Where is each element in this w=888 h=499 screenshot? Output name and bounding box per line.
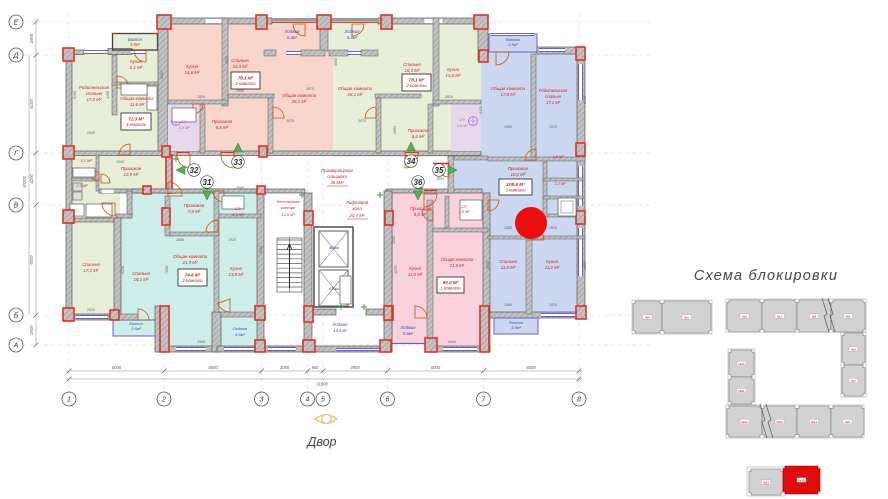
svg-text:5: 5 [321, 397, 325, 404]
svg-text:6150: 6150 [73, 91, 77, 99]
svg-text:4,1 М²: 4,1 М² [232, 212, 244, 217]
svg-text:32: 32 [190, 166, 199, 175]
svg-text:№6: №6 [851, 347, 856, 351]
svg-text:50.4 М²: 50.4 М² [443, 280, 459, 285]
svg-text:35: 35 [435, 166, 444, 175]
svg-text:2: 2 [161, 397, 166, 404]
svg-text:17,8 М²: 17,8 М² [501, 92, 516, 97]
svg-text:3575: 3575 [286, 119, 294, 123]
svg-text:2820: 2820 [86, 308, 95, 312]
svg-text:3575: 3575 [306, 87, 314, 91]
svg-text:А: А [13, 343, 19, 350]
svg-text:№4: №4 [812, 314, 817, 318]
svg-text:№5: №5 [846, 314, 851, 318]
svg-text:5052: 5052 [225, 56, 229, 64]
svg-text:11,0 М²: 11,0 М² [408, 272, 423, 277]
svg-text:1000: 1000 [236, 186, 244, 190]
svg-text:2-комнали: 2-комнали [181, 278, 203, 283]
svg-text:4: 4 [306, 397, 310, 404]
svg-text:20,7 М²: 20,7 М² [349, 213, 365, 218]
svg-text:74.6 М²: 74.6 М² [185, 272, 201, 277]
svg-text:31800: 31800 [316, 382, 328, 387]
svg-text:28,1 М²: 28,1 М² [347, 92, 363, 97]
svg-text:8,6 М²: 8,6 М² [412, 134, 425, 139]
svg-text:Общая комната: Общая комната [491, 86, 526, 91]
svg-text:31: 31 [203, 178, 212, 187]
svg-text:6100: 6100 [29, 99, 34, 109]
svg-text:2820: 2820 [548, 125, 557, 129]
svg-text:Общая комната: Общая комната [282, 93, 317, 98]
svg-text:6750: 6750 [583, 96, 587, 104]
svg-text:Спальня: Спальня [499, 259, 517, 264]
svg-text:14,5 м²: 14,5 м² [333, 328, 347, 333]
svg-text:2988: 2988 [235, 89, 244, 93]
svg-text:4250: 4250 [394, 266, 398, 274]
svg-text:78.1 М²: 78.1 М² [238, 75, 254, 80]
svg-text:Прихожая: Прихожая [212, 119, 233, 124]
svg-text:6.6м²: 6.6м² [347, 35, 358, 40]
svg-text:17,2 М²: 17,2 М² [84, 268, 99, 273]
svg-text:7,9 М²: 7,9 М² [188, 209, 201, 214]
svg-text:78.1 М²: 78.1 М² [409, 77, 425, 82]
svg-text:Родительская: Родительская [79, 85, 110, 90]
svg-text:клетка: клетка [281, 205, 296, 210]
svg-text:1850: 1850 [436, 177, 444, 181]
svg-text:Лоджия: Лоджия [344, 29, 361, 34]
svg-text:№7: №7 [851, 379, 856, 383]
svg-text:холл: холл [351, 206, 362, 211]
svg-text:Прихожая: Прихожая [121, 166, 142, 171]
svg-text:3-комнали: 3-комнали [505, 188, 526, 193]
svg-text:7600: 7600 [165, 266, 169, 274]
svg-text:Прихожая: Прихожая [408, 128, 429, 133]
svg-text:16,3 М²: 16,3 М² [405, 68, 420, 73]
svg-text:14,6 М²: 14,6 М² [446, 73, 461, 78]
svg-text:6000: 6000 [526, 365, 536, 370]
svg-text:С/У: С/У [459, 117, 466, 122]
svg-text:Кухня: Кухня [186, 64, 198, 69]
svg-text:36.5М²: 36.5М² [330, 180, 344, 185]
svg-text:3.6м²: 3.6м² [131, 326, 141, 331]
svg-text:Кухня: Кухня [447, 67, 459, 72]
svg-text:Кухня: Кухня [130, 59, 142, 64]
svg-text:2-комнали: 2-комнали [405, 83, 427, 88]
svg-text:2820: 2820 [227, 238, 236, 242]
svg-text:14,5 М²: 14,5 М² [281, 212, 295, 217]
svg-text:20200: 20200 [22, 176, 27, 189]
svg-text:36: 36 [414, 178, 423, 187]
svg-text:Приквартирная: Приквартирная [321, 168, 353, 173]
svg-text:Е: Е [14, 20, 19, 27]
svg-text:1: 1 [67, 397, 71, 404]
svg-text:6000: 6000 [112, 365, 122, 370]
svg-text:3,8 М²: 3,8 М² [552, 154, 564, 159]
svg-text:33: 33 [234, 158, 243, 167]
svg-text:10,2 М²: 10,2 М² [511, 172, 526, 177]
svg-text:2980: 2980 [175, 238, 184, 242]
svg-text:17,2 М²: 17,2 М² [546, 100, 561, 105]
svg-text:№13: №13 [776, 420, 783, 424]
svg-text:Схема блокировки: Схема блокировки [694, 268, 838, 284]
svg-text:С/У: С/У [235, 206, 242, 211]
svg-text:6000: 6000 [29, 255, 34, 265]
svg-text:12,9 М²: 12,9 М² [124, 172, 139, 177]
svg-text:Лоджия: Лоджия [332, 322, 349, 327]
svg-text:6000: 6000 [448, 340, 456, 344]
svg-text:9,8 М²: 9,8 М² [414, 212, 427, 217]
svg-text:13,8 М²: 13,8 М² [229, 272, 244, 277]
svg-text:3000: 3000 [280, 365, 290, 370]
svg-text:6.6м²: 6.6м² [287, 35, 298, 40]
svg-text:№1: №1 [684, 315, 689, 319]
svg-text:3575: 3575 [358, 119, 366, 123]
svg-text:2820: 2820 [196, 95, 205, 99]
svg-text:6000: 6000 [208, 365, 218, 370]
svg-text:2,2 М²: 2,2 М² [553, 181, 566, 186]
svg-text:Кухня: Кухня [230, 266, 242, 271]
svg-text:18,1 М²: 18,1 М² [134, 277, 149, 282]
svg-text:2820: 2820 [548, 303, 557, 307]
svg-text:34: 34 [407, 157, 416, 166]
svg-text:2980: 2980 [196, 340, 205, 344]
svg-text:3,1 М²: 3,1 М² [80, 158, 92, 163]
svg-text:1-комнали: 1-комнали [440, 286, 461, 291]
svg-text:28,1 М²: 28,1 М² [291, 99, 307, 104]
svg-text:№9: №9 [645, 315, 650, 319]
svg-text:6150: 6150 [479, 106, 483, 114]
svg-text:Спальня: Спальня [82, 262, 100, 267]
svg-text:5.1 М²: 5.1 М² [130, 65, 143, 70]
svg-text:2906: 2906 [29, 33, 34, 44]
svg-text:17.2 М²: 17.2 М² [87, 97, 102, 102]
svg-text:3,9 М²: 3,9 М² [456, 123, 468, 128]
svg-text:3,9 М²: 3,9 М² [178, 125, 190, 130]
svg-text:Общая комната: Общая комната [173, 254, 208, 259]
svg-text:11,2 М²: 11,2 М² [545, 265, 560, 270]
svg-text:С/У: С/У [461, 205, 468, 209]
svg-text:В: В [14, 203, 19, 210]
svg-text:2820: 2820 [86, 131, 95, 135]
svg-text:2000: 2000 [29, 325, 34, 336]
svg-text:2-комнали: 2-комнали [234, 81, 256, 86]
svg-text:Общая комната: Общая комната [441, 257, 474, 262]
svg-text:спальня: спальня [86, 91, 103, 96]
svg-text:№3: №3 [777, 314, 782, 318]
svg-text:№10: №10 [738, 362, 745, 366]
svg-text:1000: 1000 [116, 160, 124, 164]
svg-text:Кухня: Кухня [546, 259, 558, 264]
svg-text:2980: 2980 [393, 126, 397, 135]
svg-text:3.8м²: 3.8м² [130, 42, 141, 47]
svg-text:630кг: 630кг [329, 287, 339, 291]
svg-text:2988: 2988 [503, 125, 512, 129]
svg-text:№12: №12 [741, 420, 748, 424]
svg-text:Общая комната: Общая комната [120, 96, 154, 101]
svg-text:Родительская: Родительская [539, 88, 568, 93]
svg-text:Спальня: Спальня [403, 62, 421, 67]
svg-text:6150: 6150 [121, 266, 125, 274]
svg-text:2988: 2988 [503, 226, 512, 230]
svg-text:Лифтовой: Лифтовой [345, 200, 369, 205]
svg-text:14,6 М²: 14,6 М² [185, 70, 200, 75]
svg-text:11,8 М²: 11,8 М² [501, 265, 516, 270]
svg-text:3600: 3600 [259, 246, 263, 254]
svg-text:№14: №14 [811, 420, 818, 424]
svg-text:988кг: 988кг [329, 246, 339, 250]
svg-text:Прихожая: Прихожая [410, 206, 431, 211]
svg-text:Спальня: Спальня [231, 58, 249, 63]
svg-text:6650: 6650 [486, 261, 490, 269]
svg-text:8: 8 [577, 397, 581, 404]
svg-text:Общая комната: Общая комната [338, 86, 373, 91]
svg-text:5052: 5052 [160, 71, 164, 79]
svg-text:Лоджия: Лоджия [400, 325, 417, 330]
svg-text:спальня: спальня [545, 94, 562, 99]
svg-text:Двор: Двор [306, 435, 337, 449]
svg-text:№11: №11 [738, 389, 744, 393]
svg-text:№8: №8 [845, 420, 850, 424]
svg-text:11.6 М²: 11.6 М² [130, 102, 145, 107]
svg-text:№16: №16 [763, 480, 770, 484]
svg-text:6: 6 [386, 397, 390, 404]
svg-text:4150: 4150 [106, 91, 110, 99]
svg-text:Прихожая: Прихожая [508, 166, 529, 171]
svg-text:900: 900 [312, 365, 320, 370]
svg-text:108.6 М²: 108.6 М² [506, 182, 525, 187]
svg-text:3-комнали: 3-комнали [126, 122, 147, 127]
svg-text:2988: 2988 [503, 303, 512, 307]
svg-text:Прихожая: Прихожая [184, 203, 205, 208]
svg-text:6000: 6000 [431, 365, 441, 370]
svg-text:№2: №2 [742, 314, 747, 318]
svg-text:3: 3 [260, 397, 264, 404]
svg-text:2,2 М²: 2,2 М² [75, 183, 88, 188]
svg-text:21,9 М²: 21,9 М² [182, 260, 198, 265]
svg-text:площадка: площадка [327, 174, 347, 179]
svg-text:3.0м²: 3.0м² [511, 325, 521, 330]
svg-text:Лоджия: Лоджия [284, 29, 301, 34]
svg-text:Д: Д [13, 53, 19, 60]
svg-text:Кухня: Кухня [409, 266, 421, 271]
svg-text:6.6м²: 6.6м² [403, 331, 414, 336]
svg-text:С/У: С/У [181, 119, 188, 124]
svg-text:№15: №15 [798, 478, 805, 482]
svg-text:Спальня: Спальня [132, 271, 150, 276]
svg-text:4200: 4200 [29, 174, 34, 184]
svg-text:8,6 М²: 8,6 М² [216, 125, 229, 130]
svg-text:5052: 5052 [334, 58, 338, 66]
svg-text:2820: 2820 [444, 95, 453, 99]
svg-text:Лестничная: Лестничная [275, 199, 300, 204]
svg-text:3.8м²: 3.8м² [508, 42, 518, 47]
svg-text:Лоджия: Лоджия [232, 326, 248, 331]
svg-text:Б: Б [14, 313, 19, 320]
svg-text:4250: 4250 [392, 236, 396, 244]
svg-text:72.3 М²: 72.3 М² [128, 116, 144, 121]
svg-text:16,3 М²: 16,3 М² [233, 64, 248, 69]
svg-text:3900: 3900 [350, 365, 360, 370]
svg-text:5.6м²: 5.6м² [235, 332, 245, 337]
svg-text:6650: 6650 [583, 261, 587, 269]
svg-text:4,0 М²: 4,0 М² [459, 210, 470, 214]
svg-text:21,8 М²: 21,8 М² [449, 263, 465, 268]
svg-text:2820: 2820 [548, 226, 557, 230]
